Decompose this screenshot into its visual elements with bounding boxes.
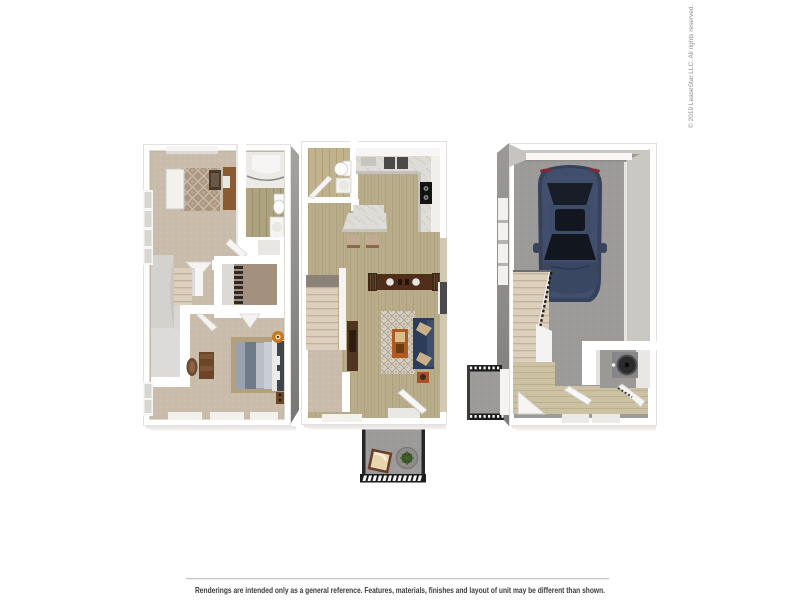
svg-text:© 2019 LeaseStar LLC. All righ: © 2019 LeaseStar LLC. All rights reserve… xyxy=(687,5,695,128)
svg-text:Renderings are intended only a: Renderings are intended only as a genera… xyxy=(195,585,605,595)
